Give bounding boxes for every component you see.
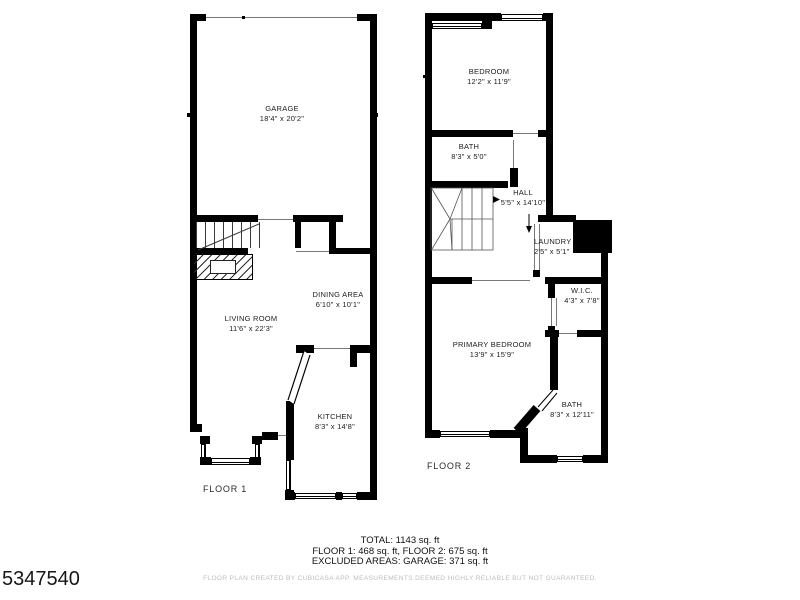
room-name: BEDROOM bbox=[467, 67, 511, 77]
stair-winder-line bbox=[432, 219, 450, 249]
room-dims: 13'9" x 15'9" bbox=[453, 350, 532, 360]
room-dims: 12'2" x 11'9" bbox=[467, 77, 511, 87]
room-dims: 4'3" x 7'8" bbox=[564, 296, 600, 306]
room-label-garage: GARAGE 18'4" x 20'2" bbox=[260, 104, 304, 123]
room-label-bath-top: BATH 8'3" x 5'0" bbox=[451, 142, 487, 161]
room-name: GARAGE bbox=[260, 104, 304, 114]
room-label-hall: HALL 5'5" x 14'10" bbox=[501, 188, 545, 207]
floor1-label: FLOOR 1 bbox=[203, 484, 247, 494]
listing-id-watermark: 5347540 bbox=[2, 568, 80, 591]
room-name: DINING AREA bbox=[312, 290, 363, 300]
excluded-areas: EXCLUDED AREAS: GARAGE: 371 sq. ft bbox=[0, 557, 800, 568]
room-name: BATH bbox=[550, 400, 594, 410]
room-dims: 5'5" x 14'10" bbox=[501, 198, 545, 208]
area-summary: TOTAL: 1143 sq. ft FLOOR 1: 468 sq. ft, … bbox=[0, 536, 800, 568]
diagonal-elements-layer bbox=[0, 0, 800, 600]
room-name: KITCHEN bbox=[315, 412, 355, 422]
stair-diagonal bbox=[198, 224, 259, 250]
room-dims: 6'10" x 10'1" bbox=[312, 300, 363, 310]
angled-window bbox=[288, 351, 310, 404]
diagonal-wall bbox=[517, 408, 537, 431]
room-dims: 18'4" x 20'2" bbox=[260, 114, 304, 124]
floor-plan-canvas: GARAGE 18'4" x 20'2" LIVING ROOM 11'6" x… bbox=[0, 0, 800, 600]
stair-winder-line bbox=[450, 188, 462, 219]
stair-winder-line bbox=[432, 189, 450, 219]
room-name: BATH bbox=[451, 142, 487, 152]
room-label-bath-bottom: BATH 8'3" x 12'11" bbox=[550, 400, 594, 419]
room-label-laundry: LAUNDRY 2'5" x 5'1" bbox=[534, 237, 571, 256]
room-name: W.I.C. bbox=[564, 286, 600, 296]
total-area: TOTAL: 1143 sq. ft bbox=[0, 536, 800, 547]
room-label-kitchen: KITCHEN 8'3" x 14'8" bbox=[315, 412, 355, 431]
room-dims: 8'3" x 5'0" bbox=[451, 152, 487, 162]
room-label-bedroom: BEDROOM 12'2" x 11'9" bbox=[467, 67, 511, 86]
room-name: HALL bbox=[501, 188, 545, 198]
room-name: LAUNDRY bbox=[534, 237, 571, 247]
room-label-dining: DINING AREA 6'10" x 10'1" bbox=[312, 290, 363, 309]
room-dims: 8'3" x 14'8" bbox=[315, 422, 355, 432]
hall-direction-arrow bbox=[493, 196, 500, 203]
room-dims: 2'5" x 5'1" bbox=[534, 247, 571, 257]
room-dims: 11'6" x 22'3" bbox=[225, 324, 278, 334]
room-name: PRIMARY BEDROOM bbox=[453, 340, 532, 350]
room-label-living: LIVING ROOM 11'6" x 22'3" bbox=[225, 314, 278, 333]
room-label-wic: W.I.C. 4'3" x 7'8" bbox=[564, 286, 600, 305]
room-name: LIVING ROOM bbox=[225, 314, 278, 324]
room-dims: 8'3" x 12'11" bbox=[550, 410, 594, 420]
chimney-mass bbox=[573, 220, 612, 253]
disclaimer-text: FLOOR PLAN CREATED BY CUBICASA APP. MEAS… bbox=[0, 575, 800, 582]
floor2-label: FLOOR 2 bbox=[427, 461, 471, 471]
stair-direction-arrowhead bbox=[526, 226, 532, 233]
room-label-primary: PRIMARY BEDROOM 13'9" x 15'9" bbox=[453, 340, 532, 359]
